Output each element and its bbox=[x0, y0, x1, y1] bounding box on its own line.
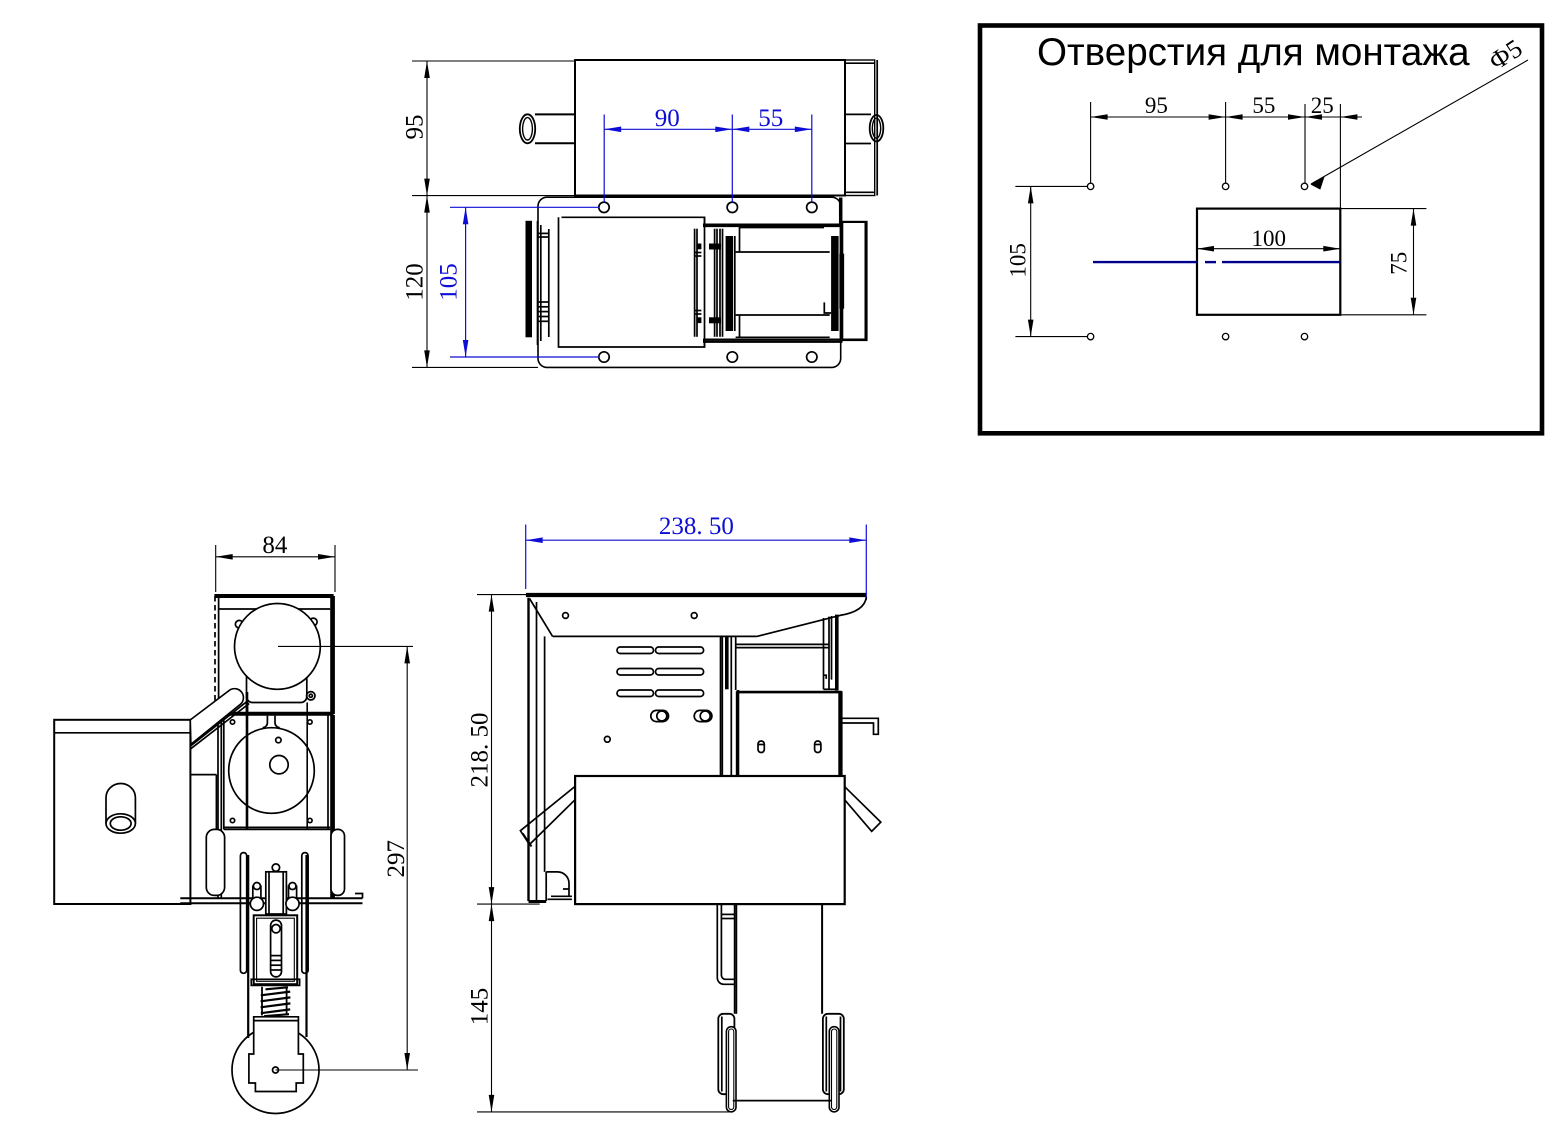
svg-text:90: 90 bbox=[655, 105, 680, 132]
svg-text:95: 95 bbox=[1145, 93, 1168, 118]
svg-text:218. 50: 218. 50 bbox=[466, 713, 493, 788]
svg-text:Отверстия для монтажа: Отверстия для монтажа bbox=[1037, 31, 1470, 74]
svg-text:75: 75 bbox=[1387, 252, 1412, 275]
svg-text:120: 120 bbox=[402, 263, 429, 301]
svg-text:105: 105 bbox=[1005, 243, 1030, 278]
svg-text:95: 95 bbox=[402, 115, 429, 140]
svg-text:25: 25 bbox=[1311, 93, 1334, 118]
svg-text:145: 145 bbox=[466, 988, 493, 1026]
svg-text:297: 297 bbox=[383, 840, 410, 878]
svg-text:55: 55 bbox=[758, 105, 783, 132]
svg-text:84: 84 bbox=[262, 532, 288, 559]
svg-text:238. 50: 238. 50 bbox=[659, 513, 734, 540]
svg-text:100: 100 bbox=[1251, 226, 1286, 251]
svg-text:105: 105 bbox=[436, 263, 463, 301]
svg-text:55: 55 bbox=[1252, 93, 1275, 118]
